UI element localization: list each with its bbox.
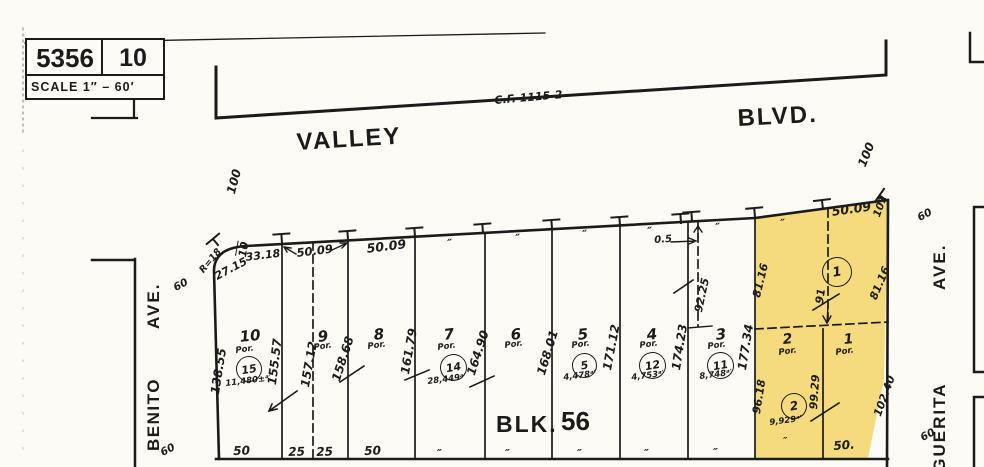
bottom-dim-50-lot10: 50 [233, 444, 250, 457]
street-marguerita: RGUERITA [931, 382, 948, 467]
lot-7-por: Por. [437, 341, 456, 352]
scale-label: SCALE 1″ – 60′ [25, 74, 165, 100]
bottom-dim-25-a: 25 [288, 445, 305, 458]
street-benito-ave: AVE. [145, 283, 162, 329]
lot-10-por: Por. [235, 344, 254, 355]
lot-8-por: Por. [367, 340, 386, 351]
lot-9-por: Por. [313, 341, 332, 352]
street-blvd: BLVD. [737, 103, 818, 131]
ditto-frontage-6: ″ [780, 218, 786, 229]
ditto-bottom-lot2: ″ [783, 437, 787, 447]
lot-6-por: Por. [504, 339, 523, 350]
plat-map: 5356 10 SCALE 1″ – 60′ VALLEYBLVD.C.F. 1… [0, 0, 984, 467]
street-marguerita-ave: AVE. [931, 244, 948, 290]
block-label: BLK. [496, 413, 558, 436]
dim-0-5: 0.5 [654, 235, 672, 246]
bottom-dim-25-b: 25 [316, 445, 333, 458]
bottom-dim-50-lot8: 50 [364, 444, 381, 457]
ditto-frontage-1: ″ [447, 238, 453, 249]
lot-5-por: Por. [571, 339, 590, 350]
bottom-dim-50-lot1: 50. [833, 439, 855, 452]
lot-10-number: 10 [239, 328, 261, 345]
dim-91: 91 [814, 288, 827, 305]
ditto-frontage-2: ″ [515, 233, 521, 244]
block-number: 56 [561, 408, 590, 434]
ditto-bottom-5: ″ [713, 447, 718, 458]
dim-99-29: 99.29 [808, 374, 821, 409]
lot-3-por: Por. [707, 340, 726, 351]
street-valley: VALLEY [296, 125, 402, 155]
lot-4-por: Por. [639, 339, 658, 350]
lot-2-number: 2 [782, 332, 793, 347]
ditto-frontage-4: ″ [647, 226, 653, 237]
ditto-bottom-3: ″ [577, 448, 582, 459]
lot-1-por: Por. [835, 346, 854, 357]
map-book-number: 5356 [25, 38, 105, 78]
ditto-bottom-2: ″ [505, 448, 510, 459]
ditto-bottom-4: ″ [644, 448, 649, 459]
ditto-frontage-5: ″ [715, 222, 721, 233]
lot-2-por: Por. [778, 346, 797, 357]
ditto-frontage-3: ″ [582, 229, 588, 240]
page-number: 10 [101, 38, 165, 78]
street-benito: BENITO [145, 378, 162, 451]
ditto-bottom-1: ″ [437, 448, 442, 459]
